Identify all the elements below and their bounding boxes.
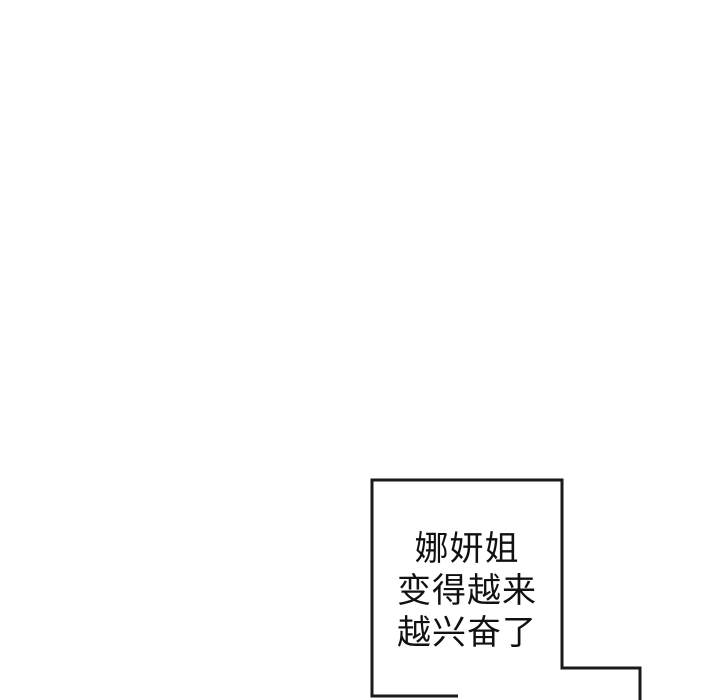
speech-line-3: 越兴奋了 bbox=[372, 612, 562, 654]
speech-line-2: 变得越来 bbox=[372, 570, 562, 612]
speech-line-1: 娜妍姐 bbox=[372, 528, 562, 570]
comic-page: 娜妍姐 变得越来 越兴奋了 bbox=[0, 0, 720, 700]
panel-border bbox=[0, 0, 720, 700]
speech-bubble: 娜妍姐 变得越来 越兴奋了 bbox=[372, 528, 562, 654]
